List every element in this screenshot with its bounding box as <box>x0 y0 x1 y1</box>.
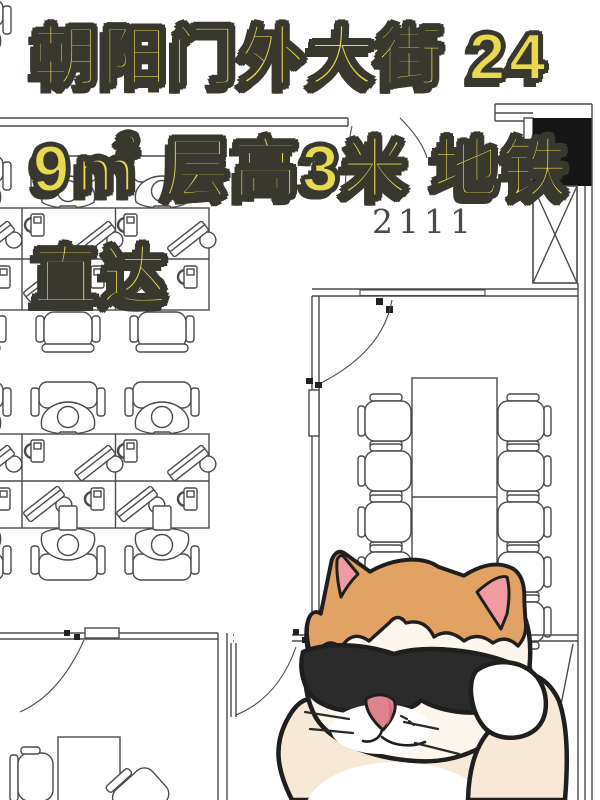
listing-poster: 2111 <box>0 0 600 800</box>
cat-mascot <box>0 0 600 800</box>
cat-paw <box>471 662 546 738</box>
headline-line-2: 9㎡ 层高3米 地铁 <box>33 136 571 201</box>
headline-line-1: 朝阳门外大街 24 <box>33 24 549 89</box>
headline-line-3: 直达 <box>33 244 171 309</box>
